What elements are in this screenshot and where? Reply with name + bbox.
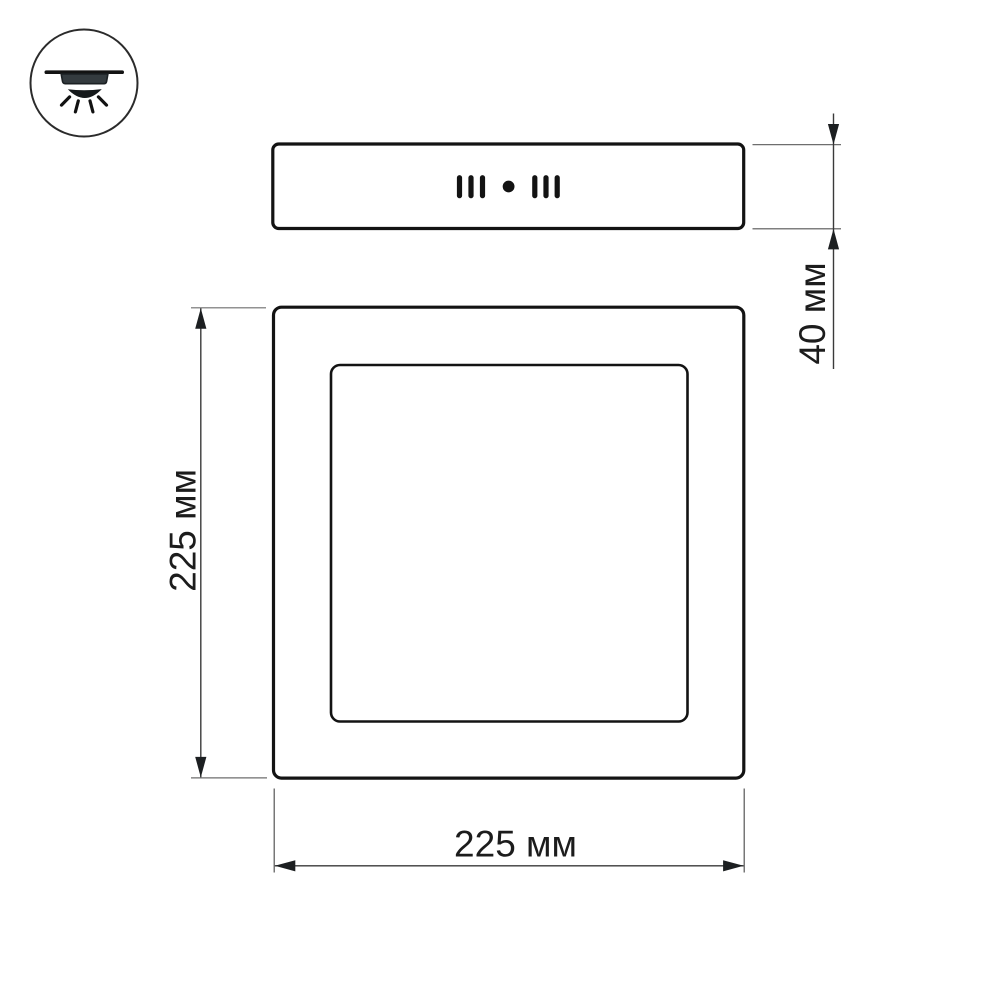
svg-text:40 мм: 40 мм (792, 262, 833, 364)
svg-text:225 мм: 225 мм (454, 824, 577, 865)
svg-text:225 мм: 225 мм (162, 469, 203, 592)
